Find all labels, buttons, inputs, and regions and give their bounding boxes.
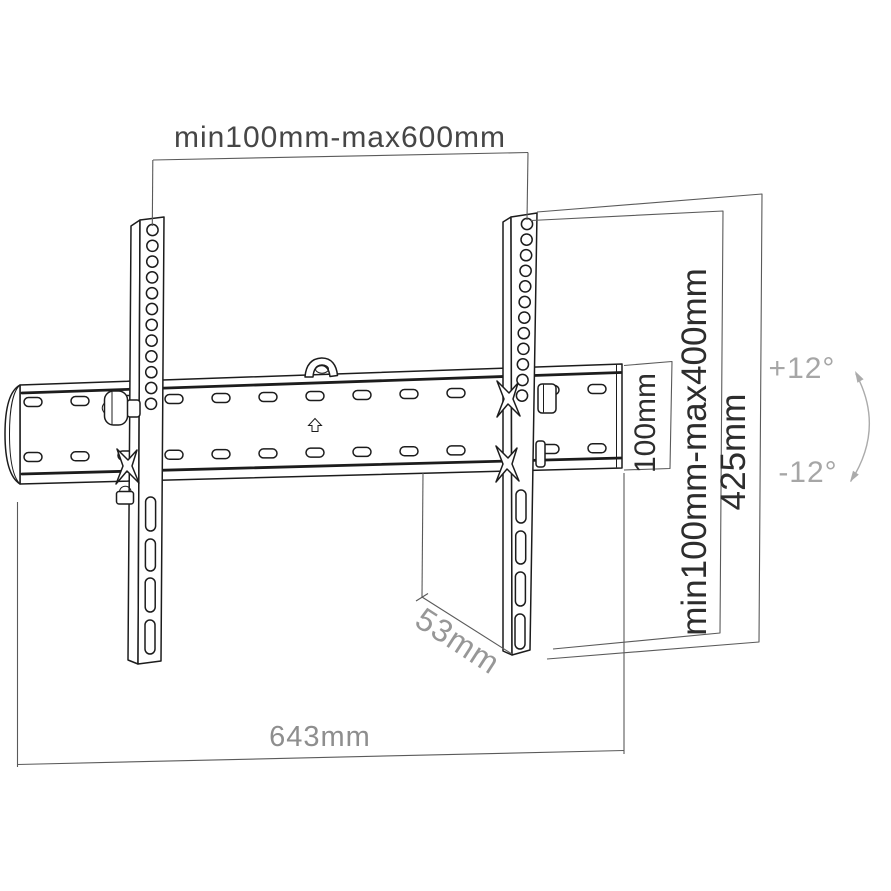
label-top-width-range: min100mm-max600mm xyxy=(174,121,506,154)
dim-top-width: min100mm-max600mm xyxy=(152,121,528,226)
label-total-width: 643mm xyxy=(269,721,371,753)
label-depth: 53mm xyxy=(409,600,507,681)
label-tilt-down: -12° xyxy=(778,456,837,489)
label-arm-height: 425mm xyxy=(714,394,753,511)
tilt-arc-icon xyxy=(851,374,869,481)
dim-plate-height: 100mm xyxy=(624,362,672,474)
label-vesa-vertical-range: min100mm-max400mm xyxy=(675,268,714,636)
dim-depth: 53mm xyxy=(409,473,512,681)
tv-mount-dimension-diagram: min100mm-max600mm 100mm min100mm-max400m… xyxy=(0,0,891,891)
label-plate-height: 100mm xyxy=(629,373,662,473)
label-tilt-up: +12° xyxy=(769,352,836,385)
tilt-annotation: +12° -12° xyxy=(769,352,870,489)
dim-total-width: 643mm xyxy=(18,473,625,767)
